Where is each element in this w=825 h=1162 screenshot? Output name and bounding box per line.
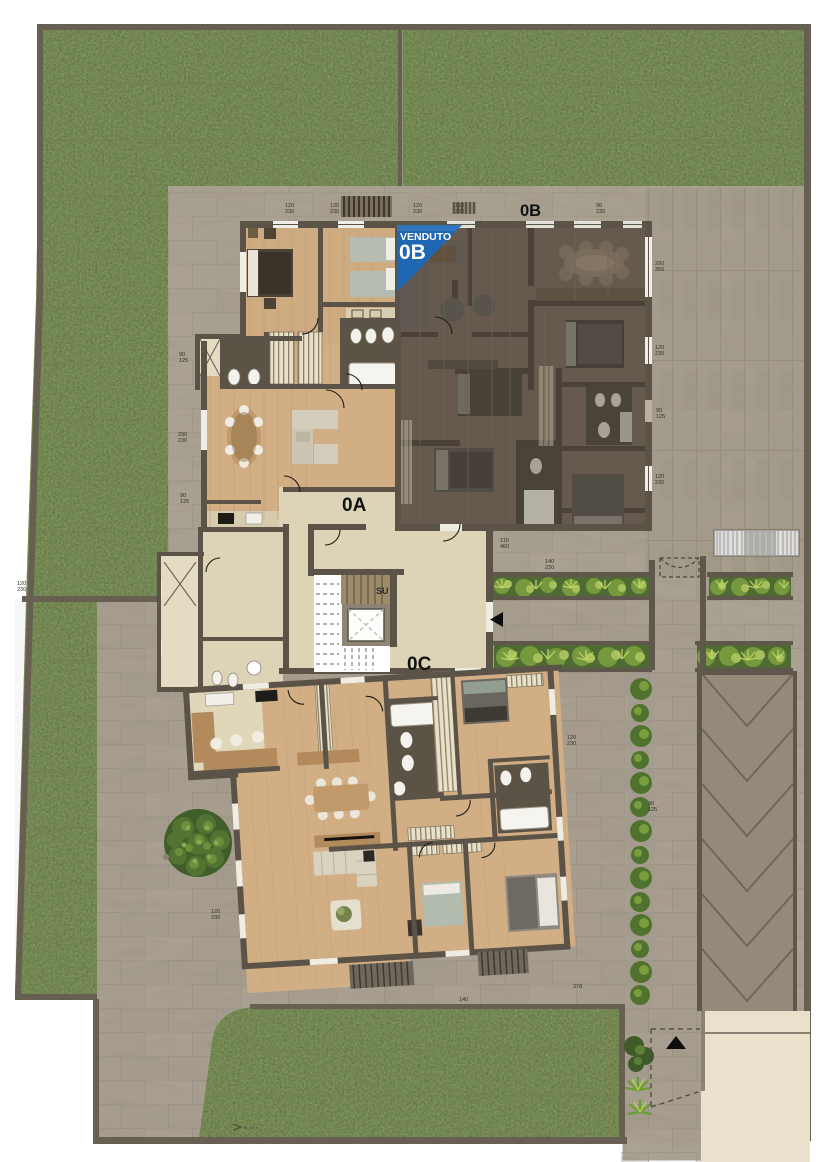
svg-text:230: 230	[455, 209, 464, 215]
svg-text:230: 230	[596, 209, 605, 215]
svg-text:125: 125	[179, 358, 188, 364]
svg-text:230: 230	[655, 480, 664, 486]
svg-text:125: 125	[648, 807, 657, 813]
svg-text:230: 230	[413, 209, 422, 215]
svg-text:230: 230	[285, 209, 294, 215]
svg-text:230: 230	[567, 741, 576, 747]
svg-text:350: 350	[655, 267, 664, 273]
svg-text:0B: 0B	[520, 202, 541, 220]
svg-text:230: 230	[178, 438, 187, 444]
svg-text:230: 230	[655, 351, 664, 357]
svg-text:140: 140	[459, 997, 468, 1003]
svg-text:460: 460	[500, 544, 509, 550]
svg-text:230: 230	[545, 565, 554, 571]
svg-text:125: 125	[656, 414, 665, 420]
svg-text:0C: 0C	[407, 654, 432, 675]
svg-text:0B: 0B	[399, 241, 426, 264]
svg-text:0A: 0A	[342, 495, 367, 516]
svg-text:230: 230	[211, 915, 220, 921]
svg-text:230: 230	[17, 587, 26, 593]
svg-text:378: 378	[573, 984, 582, 990]
svg-text:SU: SU	[376, 586, 389, 596]
svg-text:125: 125	[180, 499, 189, 505]
svg-text:230: 230	[330, 209, 339, 215]
